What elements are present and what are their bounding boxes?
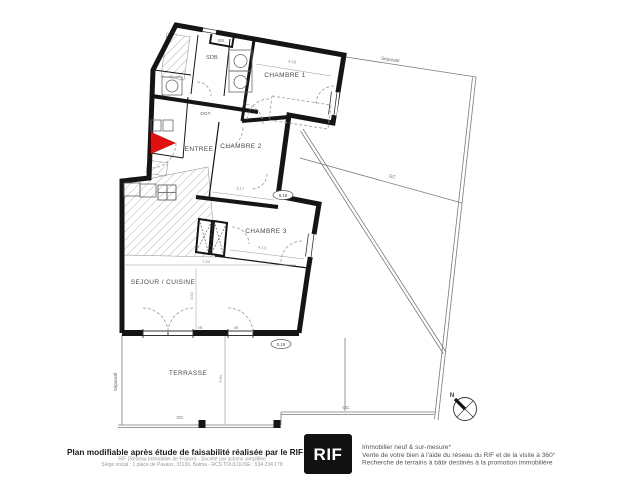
fence-post [274, 420, 281, 428]
window-label-vb-1: VB [198, 326, 203, 330]
separatif-label-left: Séparatif [113, 372, 118, 391]
dim-label: 3.84 [189, 291, 194, 300]
room-label-chambre-3: CHAMBRE 3 [245, 228, 287, 235]
dim-label: 4.13 [258, 245, 267, 251]
rif-logo-text: RIF [314, 445, 343, 464]
level-value: 0.19 [277, 342, 286, 347]
floor-plan-page: SS SDB DGT. ENTREE CHAMBRE 1 CHAMBRE 2 C… [0, 0, 640, 480]
fence-post [199, 420, 206, 428]
room-label-sejour-cuisine: SEJOUR / CUISINE [131, 279, 196, 286]
gc-label: GC [177, 415, 185, 420]
gc-label: GC [343, 405, 351, 410]
room-label-entree: ENTREE [185, 146, 214, 153]
room-label-terrasse: TERRASSE [169, 370, 208, 377]
compass-north-label: N [450, 393, 454, 399]
room-label-ss: SS [218, 38, 225, 43]
room-label-chambre-2: CHAMBRE 2 [220, 143, 262, 150]
dim-label: 7.94 [202, 259, 211, 264]
footer-service-2: Vente de votre bien à l'aide du réseau d… [362, 451, 556, 459]
footer-service-3: Recherche de terrains à bâtir destinés à… [362, 460, 553, 467]
room-label-chambre-1: CHAMBRE 1 [264, 72, 306, 79]
footer-legal-2: Siège social : 1 place de Pavaux, 31130,… [101, 462, 282, 468]
footer-main-text: Plan modifiable après étude de faisabili… [67, 447, 303, 457]
dim-label: 3.60 [218, 374, 223, 383]
room-label-dgt: DGT. [200, 111, 211, 116]
room-label-sdb: SDB [206, 55, 218, 61]
footer-service-1: Immobilier neuf & sur-mesure* [362, 444, 451, 451]
level-value: 8.19 [279, 193, 288, 198]
page-background [0, 0, 640, 480]
window-label-vb-2: VB [234, 326, 239, 330]
floor-plan-canvas: SS SDB DGT. ENTREE CHAMBRE 1 CHAMBRE 2 C… [0, 0, 640, 480]
